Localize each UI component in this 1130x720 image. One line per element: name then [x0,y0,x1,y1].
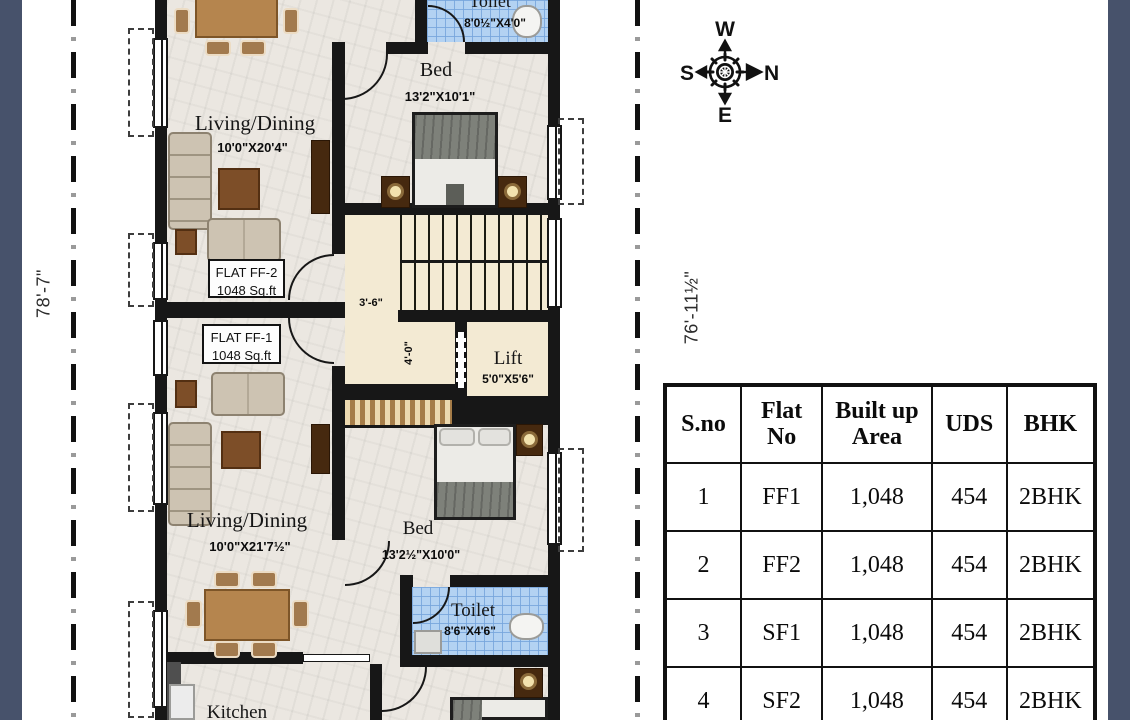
dining-chair [174,8,190,34]
cell-uds: 454 [932,599,1007,667]
sliding-door [303,654,370,662]
flat-name-ff2: FLAT FF-2 [210,264,283,282]
flat-label-ff2: FLAT FF-2 1048 Sq.ft [208,259,285,298]
lamp [387,183,404,200]
col-header-sno: S.no [665,385,741,463]
stair-mid-rail [400,260,548,263]
dining-chair [185,600,202,628]
cell-bhk: 2BHK [1007,599,1095,667]
cell-flatno: FF1 [741,463,822,531]
lamp [521,431,538,448]
cell-uds: 454 [932,463,1007,531]
col-header-builtup: Built up Area [822,385,932,463]
room-size-living-ff2: 10'0"X20'4" [175,140,330,155]
table-header-row: S.no Flat No Built up Area UDS BHK [665,385,1095,463]
room-label-kitchen: Kitchen [192,702,282,720]
cell-uds: 454 [932,667,1007,720]
bed-blanket [437,482,513,517]
flat-name-ff1: FLAT FF-1 [204,329,279,347]
room-size-toilet-ff2: 8'0½"X4'0" [440,16,550,30]
bed-blanket [415,115,495,159]
pillow [439,428,475,446]
coffee-table [221,431,261,469]
room-size-bed-ff2: 13'2"X10'1" [380,89,500,104]
wall [400,655,560,667]
window [153,320,168,376]
window [153,242,168,300]
cell-sno: 3 [665,599,741,667]
flat-label-ff1: FLAT FF-1 1048 Sq.ft [202,324,281,364]
window-projection [558,118,584,205]
side-table [175,229,197,255]
window-projection [128,28,154,137]
coffee-table [218,168,260,210]
table-row: 4 SF2 1,048 454 2BHK [665,667,1095,720]
compass-label-w: W [715,18,735,41]
lamp [520,673,537,690]
flat-spec-table: S.no Flat No Built up Area UDS BHK 1 FF1… [663,383,1097,720]
floor-plan: Living/Dining 10'0"X20'4" Bed 13'2"X10'1… [0,0,660,720]
flat-area-ff1: 1048 Sq.ft [204,347,279,365]
room-label-bed-ff1: Bed [388,518,448,540]
compass-label-e: E [718,104,732,127]
dining-chair [251,641,277,658]
room-size-living-ff1: 10'0"X21'7½" [170,539,330,554]
cell-flatno: SF2 [741,667,822,720]
room-size-toilet-ff1: 8'6"X4'6" [420,624,520,638]
window-projection [558,448,584,552]
dining-chair [214,571,240,588]
room-label-bed-ff2: Bed [396,59,476,82]
compass-icon: W N E S [658,10,793,132]
side-table [175,380,197,408]
cell-bhk: 2BHK [1007,667,1095,720]
dining-chair [205,40,231,56]
wall [370,664,382,720]
dining-chair [283,8,299,34]
loveseat [211,372,285,416]
cell-flatno: SF1 [741,599,822,667]
loveseat [207,218,281,262]
compass-label-n: N [764,62,779,85]
col-header-uds: UDS [932,385,1007,463]
cell-sno: 1 [665,463,741,531]
wall [465,42,560,54]
table-row: 1 FF1 1,048 454 2BHK [665,463,1095,531]
cell-sno: 4 [665,667,741,720]
bed-blanket [453,700,482,720]
wall [386,42,428,54]
wall [332,366,345,540]
wall [455,396,560,408]
wall [400,575,412,667]
pillow [478,428,511,446]
window-projection [128,233,154,307]
floor-plan-sheet: 78'-7" 76'-11½" W N E S [0,0,1130,720]
room-label-living-ff2: Living/Dining [175,111,335,136]
compass-label-s: S [680,62,694,85]
dining-chair [240,40,266,56]
flat-area-ff2: 1048 Sq.ft [210,282,283,300]
table-row: 3 SF1 1,048 454 2BHK [665,599,1095,667]
cell-builtup: 1,048 [822,531,932,599]
stair-width-label: 3'-6" [348,297,394,309]
window [547,218,562,308]
cell-builtup: 1,048 [822,463,932,531]
dining-chair [214,641,240,658]
overall-dimension-right: 76'-11½" [682,233,703,383]
room-label-lift: Lift [480,348,536,370]
wall [332,384,457,397]
room-size-lift: 5'0"X5'6" [470,372,546,386]
window [153,610,168,708]
lamp [504,183,521,200]
cell-sno: 2 [665,531,741,599]
dining-table [195,0,278,38]
wall [548,0,560,720]
right-border-band [1108,0,1130,720]
cell-builtup: 1,048 [822,599,932,667]
cell-uds: 454 [932,531,1007,599]
wall [155,302,345,318]
wall [450,575,560,587]
window-projection [128,403,154,512]
cell-bhk: 2BHK [1007,531,1095,599]
wall [398,310,560,322]
corridor-width-label: 4'-0" [403,332,415,374]
cell-flatno: FF2 [741,531,822,599]
bed-runner [446,184,464,205]
table-row: 2 FF2 1,048 454 2BHK [665,531,1095,599]
col-header-flatno: Flat No [741,385,822,463]
lift-door-dashed [456,332,466,388]
room-label-toilet-ff2: Toilet [450,0,530,12]
room-label-toilet-ff1: Toilet [433,600,513,622]
dining-chair [292,600,309,628]
dining-table [204,589,290,641]
room-size-bed-ff1: 13'2½"X10'0" [355,548,487,562]
cell-bhk: 2BHK [1007,463,1095,531]
col-header-bhk: BHK [1007,385,1095,463]
window [153,38,168,128]
dining-chair [251,571,277,588]
window-projection [128,601,154,718]
tv-unit [311,424,330,474]
window [153,412,168,505]
room-label-living-ff1: Living/Dining [167,508,327,533]
cell-builtup: 1,048 [822,667,932,720]
